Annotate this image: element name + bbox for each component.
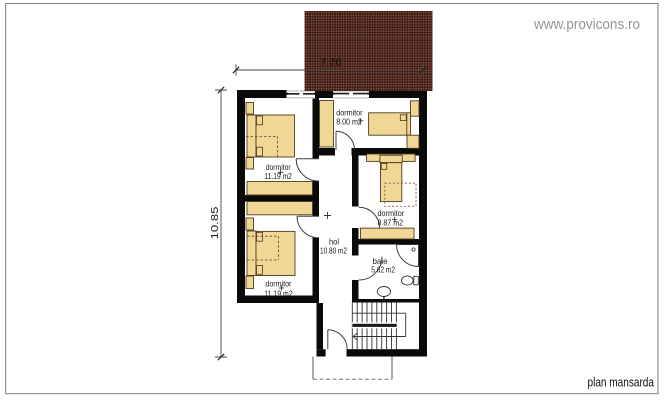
svg-text:dormitor: dormitor bbox=[378, 208, 405, 218]
svg-text:10.85: 10.85 bbox=[209, 206, 221, 239]
svg-text:7.70: 7.70 bbox=[320, 57, 342, 69]
svg-text:8.00 m2: 8.00 m2 bbox=[336, 117, 362, 127]
svg-text:www.provicons.ro: www.provicons.ro bbox=[533, 17, 640, 33]
svg-text:10.80 m2: 10.80 m2 bbox=[320, 245, 347, 255]
svg-text:8.87 m2: 8.87 m2 bbox=[378, 218, 404, 228]
svg-text:plan mansarda: plan mansarda bbox=[588, 376, 655, 390]
svg-text:dormitor: dormitor bbox=[265, 278, 291, 288]
svg-text:11.19 m2: 11.19 m2 bbox=[264, 289, 293, 299]
svg-text:5.62 m2: 5.62 m2 bbox=[371, 265, 395, 275]
